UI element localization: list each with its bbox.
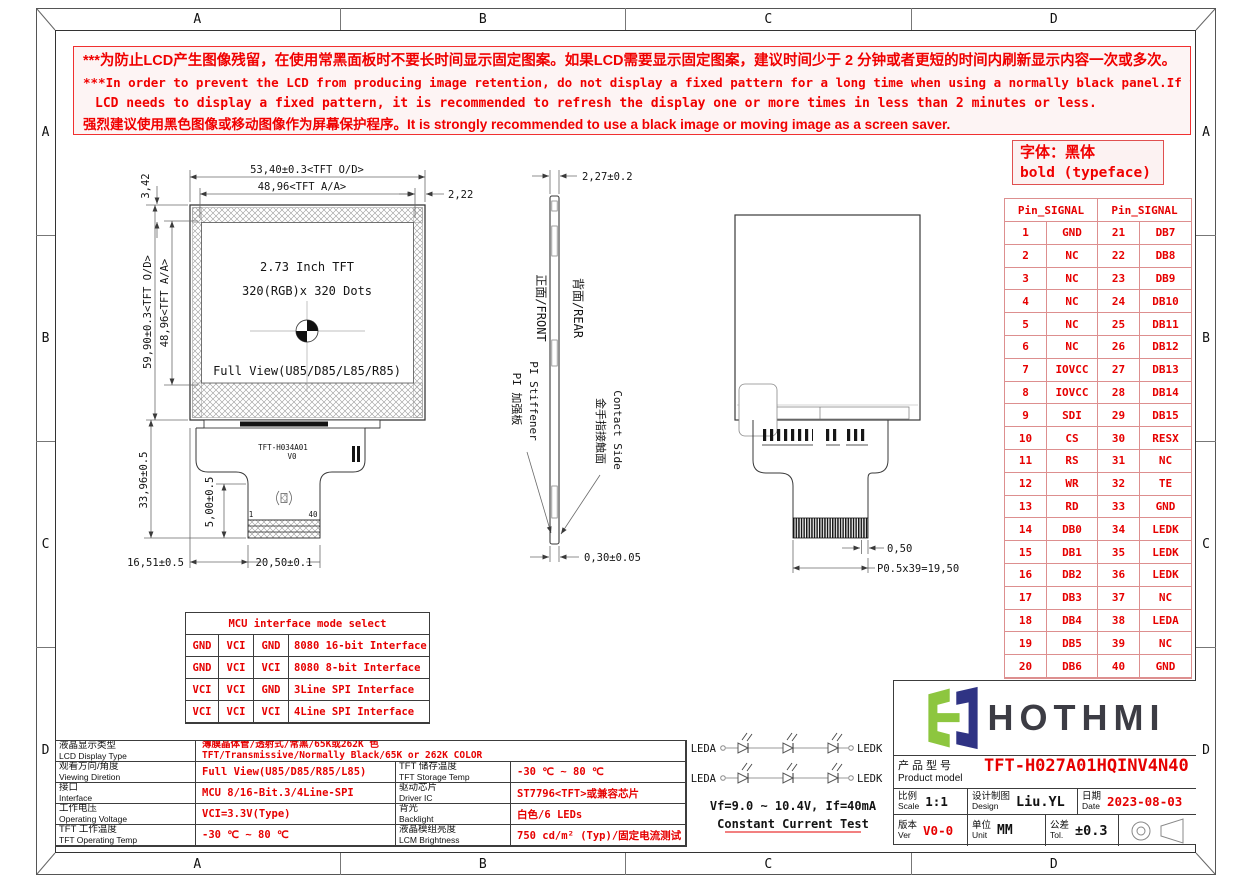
product-model-value: TFT-H027A01HQINV4N40 <box>978 756 1189 788</box>
spec-value: 750 cd/m² (Typ)/固定电流测试 <box>511 825 686 846</box>
image-retention-warning: ***为防止LCD产生图像残留，在使用常黑面板时不要长时间显示固定图案。如果LC… <box>73 46 1191 135</box>
spec-label: 观看方向/角度Viewing Diretion <box>56 762 196 783</box>
pin-cell: 25 <box>1098 313 1140 336</box>
pin-cell: DB6 <box>1047 655 1098 678</box>
mcu-cell: GND <box>186 635 219 657</box>
spec-label-line: Backlight <box>399 815 434 825</box>
spec-label-line: Viewing Diretion <box>59 773 120 783</box>
pin-cell: CS <box>1047 427 1098 450</box>
pin-cell: DB15 <box>1140 404 1191 427</box>
pin-cell: 34 <box>1098 518 1140 541</box>
typeface-note-en: bold (typeface) <box>1020 163 1156 183</box>
mcu-cell: VCI <box>219 635 254 657</box>
zone-letter: D <box>912 853 1197 875</box>
zone-ruler-right: A B C D <box>1196 30 1216 853</box>
pin-cell: TE <box>1140 473 1191 496</box>
designer-value: Liu.YL <box>1010 794 1065 810</box>
spec-value: MCU 8/16-Bit.3/4Line-SPI <box>196 783 396 804</box>
pin-cell: 13 <box>1005 496 1047 519</box>
zone-letter: C <box>626 8 912 30</box>
mcu-cell: 3Line SPI Interface <box>289 679 429 701</box>
pin-cell: GND <box>1140 655 1191 678</box>
pin-cell: NC <box>1140 587 1191 610</box>
spec-label-line: LCM Brightness <box>399 836 459 846</box>
spec-value: VCI=3.3V(Type) <box>196 804 396 825</box>
mcu-table-body: MCU interface mode select GNDVCIGND8080 … <box>185 612 430 724</box>
spec-label-line: Operating Voltage <box>59 815 127 825</box>
pin-cell: 35 <box>1098 541 1140 564</box>
spec-label: 工作电压Operating Voltage <box>56 804 196 825</box>
spec-value-display-type: 薄膜晶体管/透射式/常黑/65K或262K 色 TFT/Transmissive… <box>196 741 686 762</box>
logo-row: HOTHMI <box>894 681 1196 755</box>
zone-ruler-bottom: A B C D <box>55 853 1196 875</box>
zone-letter: C <box>1196 442 1216 648</box>
pin-cell: 32 <box>1098 473 1140 496</box>
pin-cell: 2 <box>1005 245 1047 268</box>
pin-cell: DB12 <box>1140 336 1191 359</box>
pin-cell: 18 <box>1005 610 1047 633</box>
mcu-cell: GND <box>186 657 219 679</box>
pin-cell: DB13 <box>1140 359 1191 382</box>
pin-cell: DB9 <box>1140 268 1191 291</box>
pin-cell: 26 <box>1098 336 1140 359</box>
mcu-cell: 4Line SPI Interface <box>289 701 429 723</box>
pin-cell: 40 <box>1098 655 1140 678</box>
scale-value: 1:1 <box>919 794 948 809</box>
pin-cell: DB7 <box>1140 222 1191 245</box>
spec-label-line: TFT Storage Temp <box>399 773 470 783</box>
pin-cell: 38 <box>1098 610 1140 633</box>
pin-cell: NC <box>1047 313 1098 336</box>
pin-cell: DB14 <box>1140 382 1191 405</box>
mcu-cell: VCI <box>254 657 289 679</box>
pin-cell: DB8 <box>1140 245 1191 268</box>
product-label-en: Product model <box>898 773 978 784</box>
projection-cell <box>1119 815 1196 846</box>
scale-design-date-row: 比例Scale 1:1 设计制图Design Liu.YL 日期Date 202… <box>894 788 1196 814</box>
spec-table-body: 液晶显示类型 LCD Display Type 薄膜晶体管/透射式/常黑/65K… <box>55 740 687 847</box>
spec-value: -30 ℃ ~ 80 ℃ <box>196 825 396 846</box>
zone-letter: A <box>55 853 341 875</box>
typeface-note: 字体：黑体 bold (typeface) <box>1012 140 1164 185</box>
pin-cell: RD <box>1047 496 1098 519</box>
spec-label-line: Interface <box>59 794 92 804</box>
pin-cell: DB4 <box>1047 610 1098 633</box>
spec-label-line: 接口 <box>59 783 78 794</box>
version-cell: 版本Ver V0-0 <box>894 815 968 846</box>
pin-cell: NC <box>1140 450 1191 473</box>
pin-cell: 37 <box>1098 587 1140 610</box>
pin-cell: 5 <box>1005 313 1047 336</box>
spec-label: 接口Interface <box>56 783 196 804</box>
zone-ruler-top: A B C D <box>55 8 1196 30</box>
pin-cell: NC <box>1047 290 1098 313</box>
spec-label-line: 液晶模组亮度 <box>399 825 456 836</box>
unit-value: MM <box>991 823 1013 838</box>
spec-label: 背光Backlight <box>396 804 511 825</box>
version-value: V0-0 <box>917 823 953 838</box>
pin-cell: IOVCC <box>1047 382 1098 405</box>
spec-label-line: Driver IC <box>399 794 433 804</box>
scale-label-en: Scale <box>898 802 919 811</box>
spec-label: 驱动芯片Driver IC <box>396 783 511 804</box>
zone-letter: C <box>626 853 912 875</box>
title-block: HOTHMI 产品型号 Product model TFT-H027A01HQI… <box>893 680 1196 845</box>
tolerance-cell: 公差Tol. ±0.3 <box>1046 815 1119 846</box>
pin-cell: 29 <box>1098 404 1140 427</box>
mcu-cell: VCI <box>186 679 219 701</box>
pin-cell: 6 <box>1005 336 1047 359</box>
brand-name: HOTHMI <box>988 697 1166 739</box>
spec-value: Full View(U85/D85/R85/L85) <box>196 762 396 783</box>
pin-cell: 23 <box>1098 268 1140 291</box>
mcu-cell: 8080 16-bit Interface <box>289 635 429 657</box>
pin-cell: 14 <box>1005 518 1047 541</box>
spec-label: 液晶模组亮度LCM Brightness <box>396 825 511 846</box>
pin-cell: 11 <box>1005 450 1047 473</box>
spec-label: TFT 储存温度TFT Storage Temp <box>396 762 511 783</box>
zone-letter: A <box>36 30 55 236</box>
zone-ruler-left: A B C D <box>36 30 55 853</box>
pin-cell: DB5 <box>1047 632 1098 655</box>
spec-label-en: LCD Display Type <box>59 752 127 762</box>
pin-cell: 30 <box>1098 427 1140 450</box>
pin-cell: LEDK <box>1140 518 1191 541</box>
pin-cell: RS <box>1047 450 1098 473</box>
mcu-cell: VCI <box>219 701 254 723</box>
spec-label-zh: 液晶显示类型 <box>59 741 116 752</box>
spec-label-line: 工作电压 <box>59 804 97 815</box>
pin-cell: NC <box>1047 268 1098 291</box>
pin-cell: 28 <box>1098 382 1140 405</box>
warning-line-zh: ***为防止LCD产生图像残留，在使用常黑面板时不要长时间显示固定图案。如果LC… <box>83 51 1190 72</box>
date-cell: 日期Date 2023-08-03 <box>1078 789 1196 814</box>
pin-cell: 8 <box>1005 382 1047 405</box>
zone-letter: D <box>1196 648 1216 853</box>
pin-cell: LEDK <box>1140 564 1191 587</box>
mcu-cell: 8080 8-bit Interface <box>289 657 429 679</box>
spec-label-line: 驱动芯片 <box>399 783 437 794</box>
tol-label-en: Tol. <box>1050 831 1069 840</box>
pin-cell: 7 <box>1005 359 1047 382</box>
pin-cell: 10 <box>1005 427 1047 450</box>
pin-cell: NC <box>1047 245 1098 268</box>
pin-cell: 19 <box>1005 632 1047 655</box>
pin-cell: 15 <box>1005 541 1047 564</box>
pin-cell: DB1 <box>1047 541 1098 564</box>
pin-cell: IOVCC <box>1047 359 1098 382</box>
zone-letter: D <box>912 8 1197 30</box>
pin-cell: 17 <box>1005 587 1047 610</box>
pin-cell: 31 <box>1098 450 1140 473</box>
pin-cell: NC <box>1140 632 1191 655</box>
unit-cell: 单位Unit MM <box>968 815 1046 846</box>
zone-letter: B <box>341 853 627 875</box>
spec-label-line: TFT 工作温度 <box>59 825 117 836</box>
pin-cell: RESX <box>1140 427 1191 450</box>
product-label-zh: 产品型号 <box>898 760 978 772</box>
zone-letter: B <box>36 236 55 442</box>
zone-letter: A <box>1196 30 1216 236</box>
spec-label-line: TFT Operating Temp <box>59 836 137 846</box>
zone-letter: B <box>341 8 627 30</box>
typeface-note-zh: 字体：黑体 <box>1020 143 1156 163</box>
pin-table-body: Pin_SIGNAL Pin_SIGNAL 1GND21DB72NC22DB83… <box>1004 198 1192 679</box>
design-label-en: Design <box>972 802 1010 811</box>
spec-label-line: TFT 储存温度 <box>399 762 457 773</box>
date-label-en: Date <box>1082 802 1101 811</box>
spec-value: -30 ℃ ~ 80 ℃ <box>511 762 686 783</box>
spec-label-line: 观看方向/角度 <box>59 762 119 773</box>
zone-letter: C <box>36 442 55 648</box>
pin-cell: 27 <box>1098 359 1140 382</box>
date-value: 2023-08-03 <box>1101 794 1182 809</box>
pin-cell: 9 <box>1005 404 1047 427</box>
pin-cell: 39 <box>1098 632 1140 655</box>
datasheet-page: A B C D A B C D A B C D A B C D ***为防止LC… <box>0 0 1250 883</box>
ver-unit-tol-row: 版本Ver V0-0 单位Unit MM 公差Tol. ±0.3 <box>894 814 1196 846</box>
pin-cell: 21 <box>1098 222 1140 245</box>
spec-label: TFT 工作温度TFT Operating Temp <box>56 825 196 846</box>
pin-table-header-left: Pin_SIGNAL <box>1005 199 1098 222</box>
pin-cell: 16 <box>1005 564 1047 587</box>
tolerance-value: ±0.3 <box>1069 823 1108 839</box>
pin-cell: 36 <box>1098 564 1140 587</box>
pin-cell: 1 <box>1005 222 1047 245</box>
pin-table-header-right: Pin_SIGNAL <box>1098 199 1191 222</box>
mcu-cell: VCI <box>219 679 254 701</box>
ver-label-en: Ver <box>898 831 917 840</box>
pin-cell: 20 <box>1005 655 1047 678</box>
pin-cell: DB2 <box>1047 564 1098 587</box>
hothmi-logo-icon <box>925 686 981 750</box>
pin-cell: GND <box>1140 496 1191 519</box>
mcu-table-title: MCU interface mode select <box>186 613 429 635</box>
pin-cell: SDI <box>1047 404 1098 427</box>
unit-label-en: Unit <box>972 831 991 840</box>
spec-value-en: TFT/Transmissive/Normally Black/65K or 2… <box>202 751 482 762</box>
spec-label-line: 背光 <box>399 804 418 815</box>
mcu-cell: VCI <box>254 701 289 723</box>
scale-cell: 比例Scale 1:1 <box>894 789 968 814</box>
pin-cell: 33 <box>1098 496 1140 519</box>
zone-letter: D <box>36 648 55 853</box>
spec-value: ST7796<TFT>或兼容芯片 <box>511 783 686 804</box>
pin-cell: LEDK <box>1140 541 1191 564</box>
pin-cell: 4 <box>1005 290 1047 313</box>
design-cell: 设计制图Design Liu.YL <box>968 789 1078 814</box>
pin-cell: 24 <box>1098 290 1140 313</box>
pin-cell: GND <box>1047 222 1098 245</box>
pin-cell: DB0 <box>1047 518 1098 541</box>
pin-cell: NC <box>1047 336 1098 359</box>
warning-line-mixed: 强烈建议使用黑色图像或移动图像作为屏幕保护程序。It is strongly r… <box>83 114 1190 135</box>
pin-cell: 12 <box>1005 473 1047 496</box>
warning-line-en2: LCD needs to display a fixed pattern, it… <box>83 93 1190 114</box>
product-model-row: 产品型号 Product model TFT-H027A01HQINV4N40 <box>894 755 1196 788</box>
warning-line-en1: ***In order to prevent the LCD from prod… <box>83 72 1190 93</box>
pin-cell: WR <box>1047 473 1098 496</box>
mcu-cell: GND <box>254 635 289 657</box>
mcu-cell: VCI <box>219 657 254 679</box>
third-angle-projection-icon <box>1125 816 1191 846</box>
spec-label: 液晶显示类型 LCD Display Type <box>56 741 196 762</box>
mcu-cell: GND <box>254 679 289 701</box>
pin-cell: DB11 <box>1140 313 1191 336</box>
pin-cell: 3 <box>1005 268 1047 291</box>
pin-cell: DB10 <box>1140 290 1191 313</box>
pin-cell: 22 <box>1098 245 1140 268</box>
spec-value: 白色/6 LEDs <box>511 804 686 825</box>
zone-letter: A <box>55 8 341 30</box>
pin-cell: LEDA <box>1140 610 1191 633</box>
pin-cell: DB3 <box>1047 587 1098 610</box>
product-model-label: 产品型号 Product model <box>894 756 978 788</box>
mcu-cell: VCI <box>186 701 219 723</box>
zone-letter: B <box>1196 236 1216 442</box>
